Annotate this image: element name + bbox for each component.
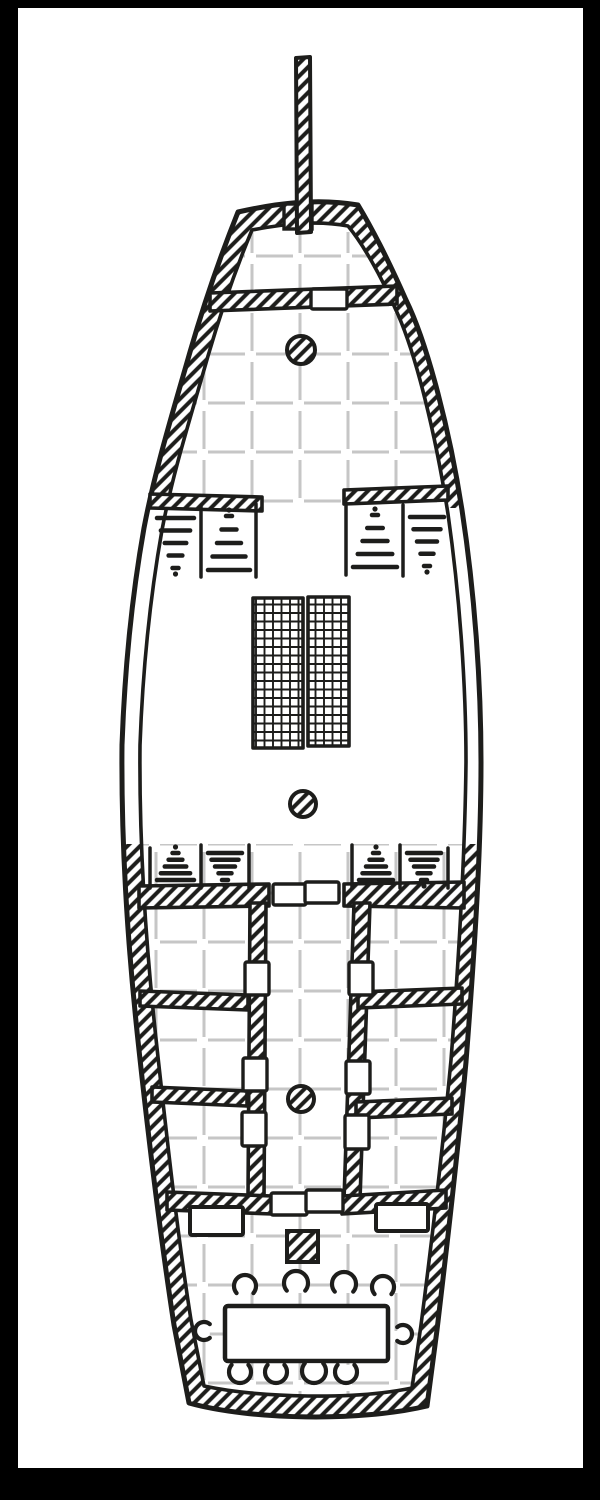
corridor-wall-left [248,903,266,1198]
stern-locker-left [190,1207,243,1235]
frame-right-bar [583,0,600,1500]
stern-chair [284,1271,308,1291]
aft-bulkhead-door-left [273,884,306,905]
stern-door-right [306,1190,343,1212]
corridor-door-right-2 [346,1061,370,1094]
stern-chair [302,1363,326,1383]
frame-top-bar [0,0,600,8]
foremast [287,336,315,364]
forecastle-bulkhead-right [344,486,448,504]
frame-bottom-bar [0,1468,600,1500]
cargo-grate-right [308,597,349,746]
cabin-divider-right-2 [356,1098,452,1118]
stern-table [225,1306,388,1361]
cabin-divider-left-1 [140,991,248,1010]
stair-step-dot [173,844,178,849]
mizzenmast [288,1086,314,1112]
stern-locker-right [376,1204,428,1231]
mizzen-mast-step [287,1231,318,1262]
corridor-door-left-2 [243,1058,267,1091]
stern-chair [397,1325,412,1343]
stern-door-left [271,1193,307,1215]
corridor-door-left-3 [242,1112,266,1146]
corridor-door-left-1 [245,962,269,995]
stern-chair [372,1276,394,1294]
stair-step-dot [372,506,377,511]
deck-plan-svg [0,0,600,1500]
stern-chair [265,1365,287,1383]
stern-chair [229,1365,251,1383]
stern-chair [335,1365,357,1383]
bowsprit [296,57,311,233]
stair-step-dot [173,571,178,576]
stair-step-dot [421,883,426,888]
stair-step-dot [222,883,227,888]
stair-step-dot [226,507,231,512]
stern-chair [195,1322,210,1340]
stair-step-dot [424,569,429,574]
ship-deck-plan [0,0,600,1500]
corridor-door-right-3 [345,1115,369,1149]
stair-step-dot [373,844,378,849]
cargo-grate-left [253,598,303,748]
corridor-door-right-1 [349,962,373,995]
bow-door [311,289,347,309]
cabin-divider-left-2 [152,1087,247,1106]
forecastle-bulkhead-left [150,494,262,511]
aft-bulkhead-door-right [305,882,339,903]
stern-chair [332,1272,356,1292]
mainmast [290,791,316,817]
frame-left-bar [0,0,18,1500]
stern-chair [234,1275,256,1293]
